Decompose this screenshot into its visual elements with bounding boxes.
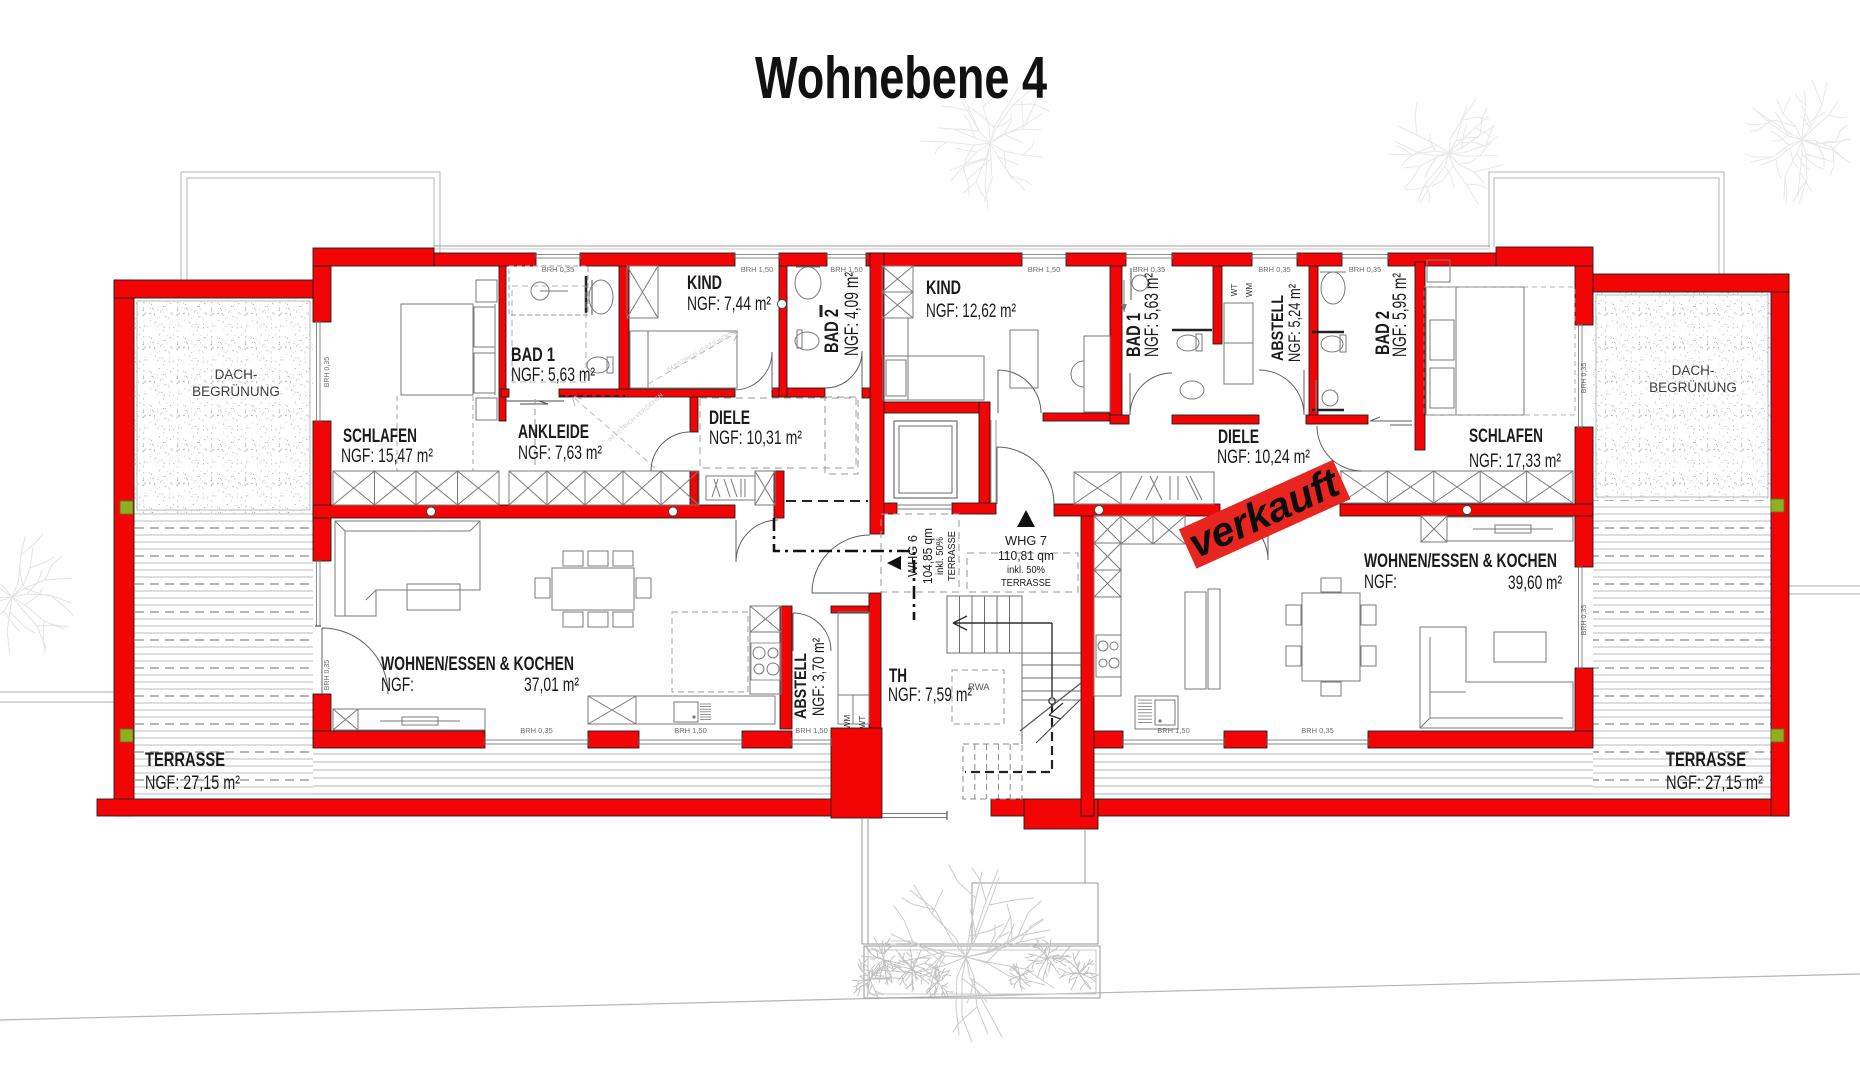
svg-text:TH: TH <box>889 666 907 687</box>
svg-text:NGF: 27,15 m²: NGF: 27,15 m² <box>145 773 240 794</box>
svg-text:DIELE: DIELE <box>1218 427 1259 448</box>
svg-text:NGF:: NGF: <box>1364 572 1397 593</box>
svg-text:verkauft: verkauft <box>1181 458 1347 567</box>
svg-text:TERRASSE: TERRASSE <box>947 531 958 581</box>
svg-text:NGF: 5,24 m²: NGF: 5,24 m² <box>1285 284 1304 362</box>
svg-text:BAD 1: BAD 1 <box>511 345 555 366</box>
svg-text:BRH 0,35: BRH 0,35 <box>1581 363 1588 393</box>
svg-text:NGF: 10,24 m²: NGF: 10,24 m² <box>1217 447 1310 468</box>
svg-text:KIND: KIND <box>926 278 961 299</box>
svg-text:WM: WM <box>843 715 852 730</box>
svg-text:BAD 2: BAD 2 <box>822 309 843 353</box>
svg-text:SCHLAFEN: SCHLAFEN <box>1469 426 1543 447</box>
svg-text:NGF: 27,15 m²: NGF: 27,15 m² <box>1666 773 1763 794</box>
svg-text:BEGRÜNUNG: BEGRÜNUNG <box>192 384 280 399</box>
svg-text:TERRASSE: TERRASSE <box>145 750 225 771</box>
svg-text:NGF: 3,70 m²: NGF: 3,70 m² <box>809 638 828 716</box>
svg-text:NGF: 5,63 m²: NGF: 5,63 m² <box>1142 273 1163 357</box>
svg-text:104,85 qm: 104,85 qm <box>920 528 935 584</box>
svg-text:BRH 1,50: BRH 1,50 <box>1028 265 1061 274</box>
svg-text:KIND: KIND <box>687 273 722 294</box>
svg-text:DACH-: DACH- <box>215 367 258 382</box>
svg-text:BEGRÜNUNG: BEGRÜNUNG <box>1649 380 1737 395</box>
svg-text:WOHNEN/ESSEN & KOCHEN: WOHNEN/ESSEN & KOCHEN <box>1364 551 1557 572</box>
svg-text:ANKLEIDE: ANKLEIDE <box>518 422 589 443</box>
svg-text:WT: WT <box>1230 284 1239 297</box>
svg-text:BRH 0,35: BRH 0,35 <box>1581 605 1588 635</box>
svg-text:TERRASSE: TERRASSE <box>1001 578 1051 589</box>
svg-text:NGF: 15,47 m²: NGF: 15,47 m² <box>341 446 433 467</box>
svg-text:BRH 0,35: BRH 0,35 <box>1258 265 1291 274</box>
svg-text:IM ESTRICH VERZIEHEN: IM ESTRICH VERZIEHEN <box>666 333 730 374</box>
svg-text:NGF: 5,95 m²: NGF: 5,95 m² <box>1390 273 1411 357</box>
svg-text:WHG 7: WHG 7 <box>1005 533 1047 548</box>
svg-text:NGF: 7,59 m²: NGF: 7,59 m² <box>888 685 972 706</box>
svg-text:BRH 1,50: BRH 1,50 <box>795 726 828 735</box>
svg-text:BRH 1,50: BRH 1,50 <box>674 726 707 735</box>
svg-text:BRH 0,35: BRH 0,35 <box>1301 726 1334 735</box>
svg-text:IM ESTRICH VERZIEHEN: IM ESTRICH VERZIEHEN <box>607 393 664 444</box>
svg-text:DACH-: DACH- <box>1672 363 1715 378</box>
svg-text:NGF: 5,63 m²: NGF: 5,63 m² <box>511 365 595 386</box>
svg-text:NGF: 10,31 m²: NGF: 10,31 m² <box>709 428 802 449</box>
svg-text:inkl. 50%: inkl. 50% <box>935 537 946 575</box>
svg-text:BRH 1,50: BRH 1,50 <box>741 265 774 274</box>
svg-text:inkl. 50%: inkl. 50% <box>1007 565 1045 576</box>
svg-text:NGF: 12,62 m²: NGF: 12,62 m² <box>926 301 1016 322</box>
svg-text:37,01 m²: 37,01 m² <box>524 675 579 696</box>
svg-text:WOHNEN/ESSEN & KOCHEN: WOHNEN/ESSEN & KOCHEN <box>381 654 574 675</box>
svg-text:NGF: 7,63 m²: NGF: 7,63 m² <box>518 443 602 464</box>
svg-text:BRH 0,35: BRH 0,35 <box>520 726 553 735</box>
svg-text:WT: WT <box>858 716 867 729</box>
svg-text:ABSTELL: ABSTELL <box>791 653 810 719</box>
svg-text:DIELE: DIELE <box>709 408 750 429</box>
svg-text:110,81 qm: 110,81 qm <box>998 548 1054 563</box>
svg-text:NGF:: NGF: <box>381 675 414 696</box>
svg-text:39,60 m²: 39,60 m² <box>1508 573 1562 594</box>
svg-text:WM: WM <box>1245 283 1254 298</box>
svg-text:BRH 0,35: BRH 0,35 <box>324 357 331 387</box>
svg-text:NGF: 17,33 m²: NGF: 17,33 m² <box>1469 451 1561 472</box>
svg-text:WHG 6: WHG 6 <box>905 535 920 577</box>
svg-text:BRH 0,35: BRH 0,35 <box>1133 265 1166 274</box>
svg-text:Wohnebene 4: Wohnebene 4 <box>755 45 1047 111</box>
svg-text:SCHLAFEN: SCHLAFEN <box>343 426 417 447</box>
svg-text:BRH 1,50: BRH 1,50 <box>1157 726 1190 735</box>
svg-text:BRH 0,35: BRH 0,35 <box>1349 265 1382 274</box>
svg-text:NGF: 7,44 m²: NGF: 7,44 m² <box>687 294 771 315</box>
svg-text:BRH 0,35: BRH 0,35 <box>324 660 331 690</box>
svg-text:TERRASSE: TERRASSE <box>1666 750 1746 771</box>
svg-text:NGF: 4,09 m²: NGF: 4,09 m² <box>842 272 863 356</box>
